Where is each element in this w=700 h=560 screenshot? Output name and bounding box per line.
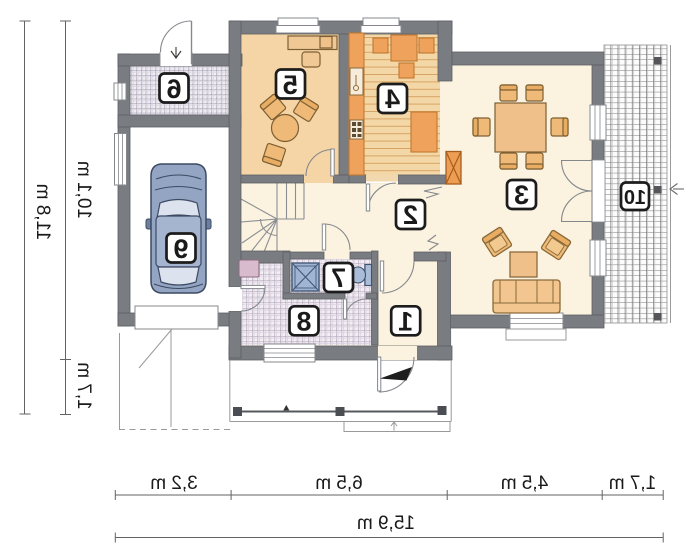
svg-text:10,1 m: 10,1 m xyxy=(73,161,94,219)
svg-text:9: 9 xyxy=(173,234,188,264)
svg-text:1,7 m: 1,7 m xyxy=(73,362,94,410)
svg-text:3: 3 xyxy=(514,180,529,210)
svg-text:11,8 m: 11,8 m xyxy=(32,184,53,241)
svg-text:3,2 m: 3,2 m xyxy=(150,473,198,494)
svg-text:1,7 m: 1,7 m xyxy=(609,473,657,494)
svg-text:5: 5 xyxy=(283,70,298,100)
svg-text:8: 8 xyxy=(296,307,311,337)
svg-text:7: 7 xyxy=(331,263,346,293)
svg-text:6: 6 xyxy=(166,74,181,104)
svg-text:6,5 m: 6,5 m xyxy=(315,473,363,494)
svg-text:4,5 m: 4,5 m xyxy=(501,473,549,494)
svg-text:4: 4 xyxy=(385,84,400,114)
svg-text:1: 1 xyxy=(398,307,413,337)
svg-text:15,9 m: 15,9 m xyxy=(357,513,415,534)
svg-text:10: 10 xyxy=(624,187,646,209)
svg-text:2: 2 xyxy=(403,200,418,230)
